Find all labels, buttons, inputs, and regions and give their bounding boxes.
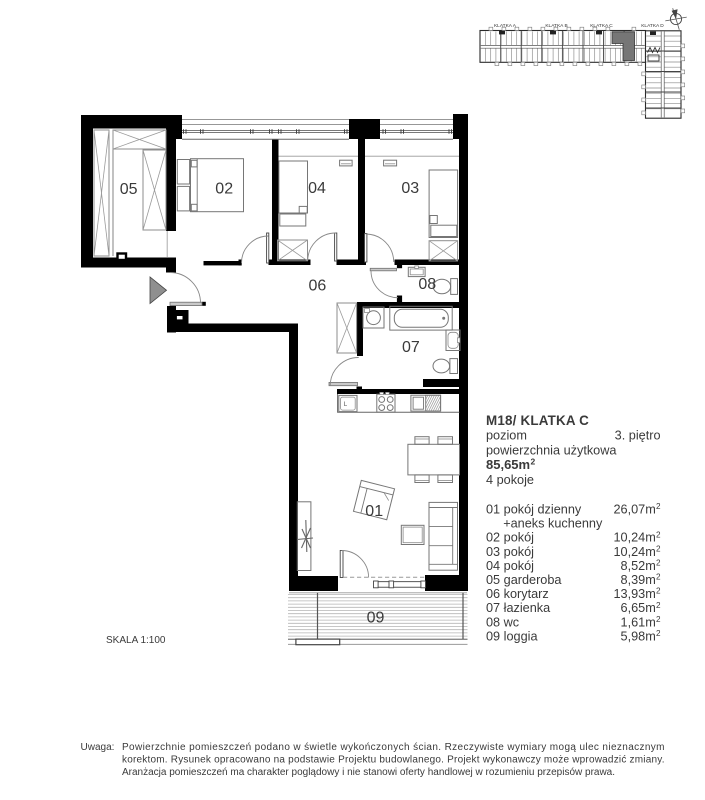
svg-text:2: 2 — [656, 573, 661, 582]
svg-text:09: 09 — [367, 609, 385, 626]
svg-text:Uwaga:: Uwaga: — [81, 742, 115, 753]
svg-text:85,65m: 85,65m — [486, 457, 530, 472]
svg-text:10,24m: 10,24m — [613, 545, 655, 559]
svg-text:2: 2 — [656, 559, 661, 568]
svg-text:SKALA 1:100: SKALA 1:100 — [106, 635, 166, 646]
svg-text:04 pokój: 04 pokój — [486, 559, 534, 573]
svg-text:07 łazienka: 07 łazienka — [486, 601, 551, 615]
svg-text:3. piętro: 3. piętro — [615, 429, 661, 443]
svg-text:2: 2 — [656, 629, 661, 638]
svg-text:+aneks kuchenny: +aneks kuchenny — [503, 517, 603, 531]
svg-text:04: 04 — [308, 180, 326, 197]
svg-text:06 korytarz: 06 korytarz — [486, 587, 549, 601]
svg-text:2: 2 — [656, 502, 661, 511]
svg-text:2: 2 — [656, 615, 661, 624]
svg-text:06: 06 — [309, 278, 327, 295]
svg-text:26,07m: 26,07m — [613, 503, 655, 517]
svg-text:1,61m: 1,61m — [621, 615, 656, 629]
svg-text:09 loggia: 09 loggia — [486, 629, 538, 643]
svg-text:01 pokój dzienny: 01 pokój dzienny — [486, 503, 582, 517]
svg-text:02 pokój: 02 pokój — [486, 531, 534, 545]
svg-text:07: 07 — [402, 339, 420, 356]
svg-text:10,24m: 10,24m — [613, 531, 655, 545]
svg-text:KLATKA D: KLATKA D — [641, 23, 664, 29]
svg-text:2: 2 — [656, 587, 661, 596]
svg-text:02: 02 — [215, 180, 233, 197]
svg-text:L: L — [344, 401, 348, 408]
svg-text:powierzchnia użytkowa: powierzchnia użytkowa — [486, 443, 617, 457]
svg-text:korektom. Rysunek opracowano n: korektom. Rysunek opracowano na podstawi… — [122, 754, 665, 765]
svg-text:2: 2 — [656, 601, 661, 610]
svg-text:08: 08 — [418, 276, 436, 293]
svg-text:8,39m: 8,39m — [621, 573, 656, 587]
svg-text:03: 03 — [401, 180, 419, 197]
svg-text:03 pokój: 03 pokój — [486, 545, 534, 559]
svg-text:08 wc: 08 wc — [486, 615, 520, 629]
svg-text:01: 01 — [365, 503, 383, 520]
svg-text:8,52m: 8,52m — [621, 559, 656, 573]
svg-text:13,93m: 13,93m — [613, 587, 655, 601]
svg-text:KLATKA A: KLATKA A — [494, 23, 517, 29]
svg-text:KLATKA B: KLATKA B — [545, 23, 567, 29]
svg-text:M18/ KLATKA C: M18/ KLATKA C — [486, 413, 589, 428]
svg-text:4 pokoje: 4 pokoje — [486, 473, 534, 487]
svg-text:5,98m: 5,98m — [621, 629, 656, 643]
svg-text:Powierzchnie pomieszczeń podan: Powierzchnie pomieszczeń podano w świetl… — [122, 742, 665, 753]
svg-text:KLATKA C: KLATKA C — [590, 23, 613, 29]
svg-text:05: 05 — [120, 181, 138, 198]
svg-text:2: 2 — [656, 530, 661, 539]
svg-text:05 garderoba: 05 garderoba — [486, 573, 562, 587]
svg-text:2: 2 — [656, 544, 661, 553]
svg-text:6,65m: 6,65m — [621, 601, 656, 615]
svg-text:Aranżacja pomieszczeń ma chara: Aranżacja pomieszczeń ma charakter poglą… — [122, 767, 615, 778]
svg-text:2: 2 — [531, 456, 536, 466]
svg-text:poziom: poziom — [486, 429, 527, 443]
